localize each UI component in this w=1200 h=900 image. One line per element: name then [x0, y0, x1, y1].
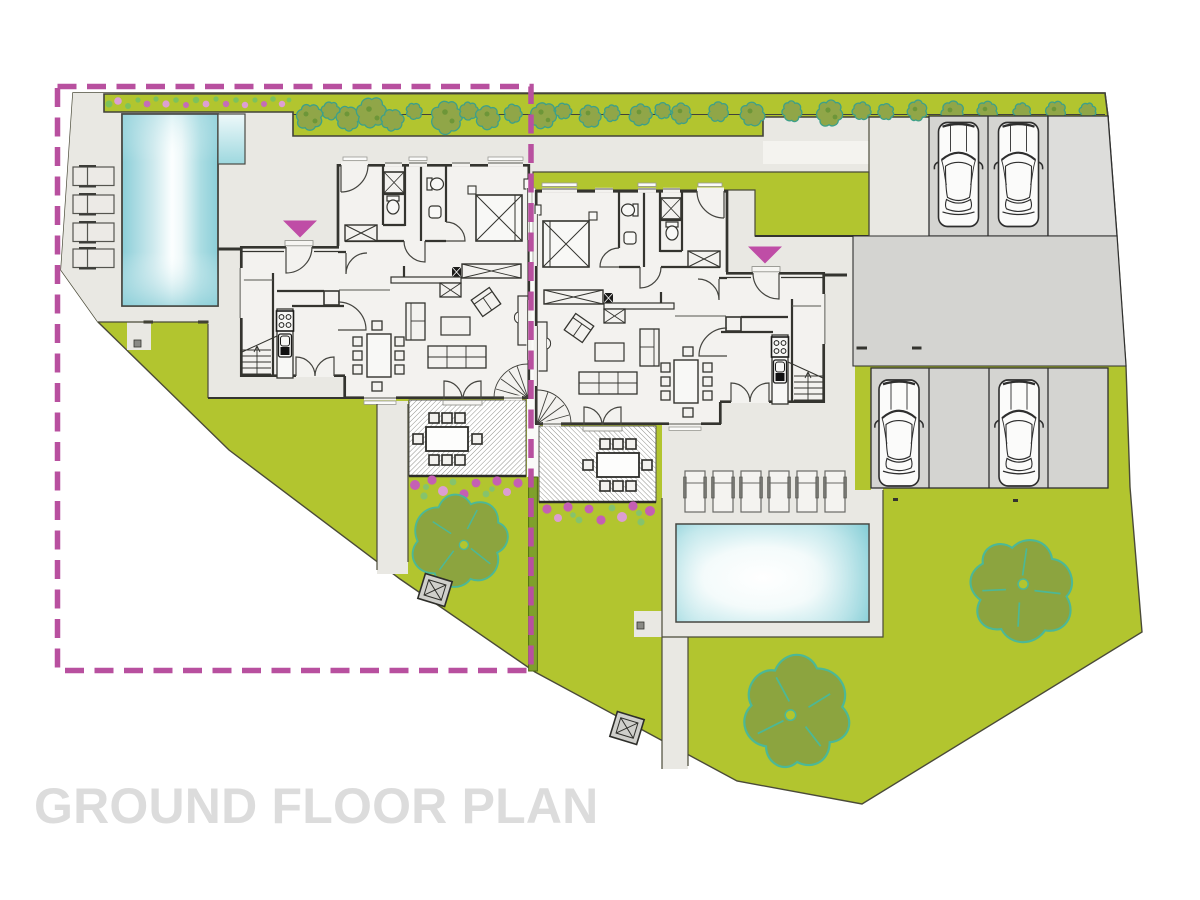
- svg-text:GROUND FLOOR PLAN: GROUND FLOOR PLAN: [34, 778, 598, 834]
